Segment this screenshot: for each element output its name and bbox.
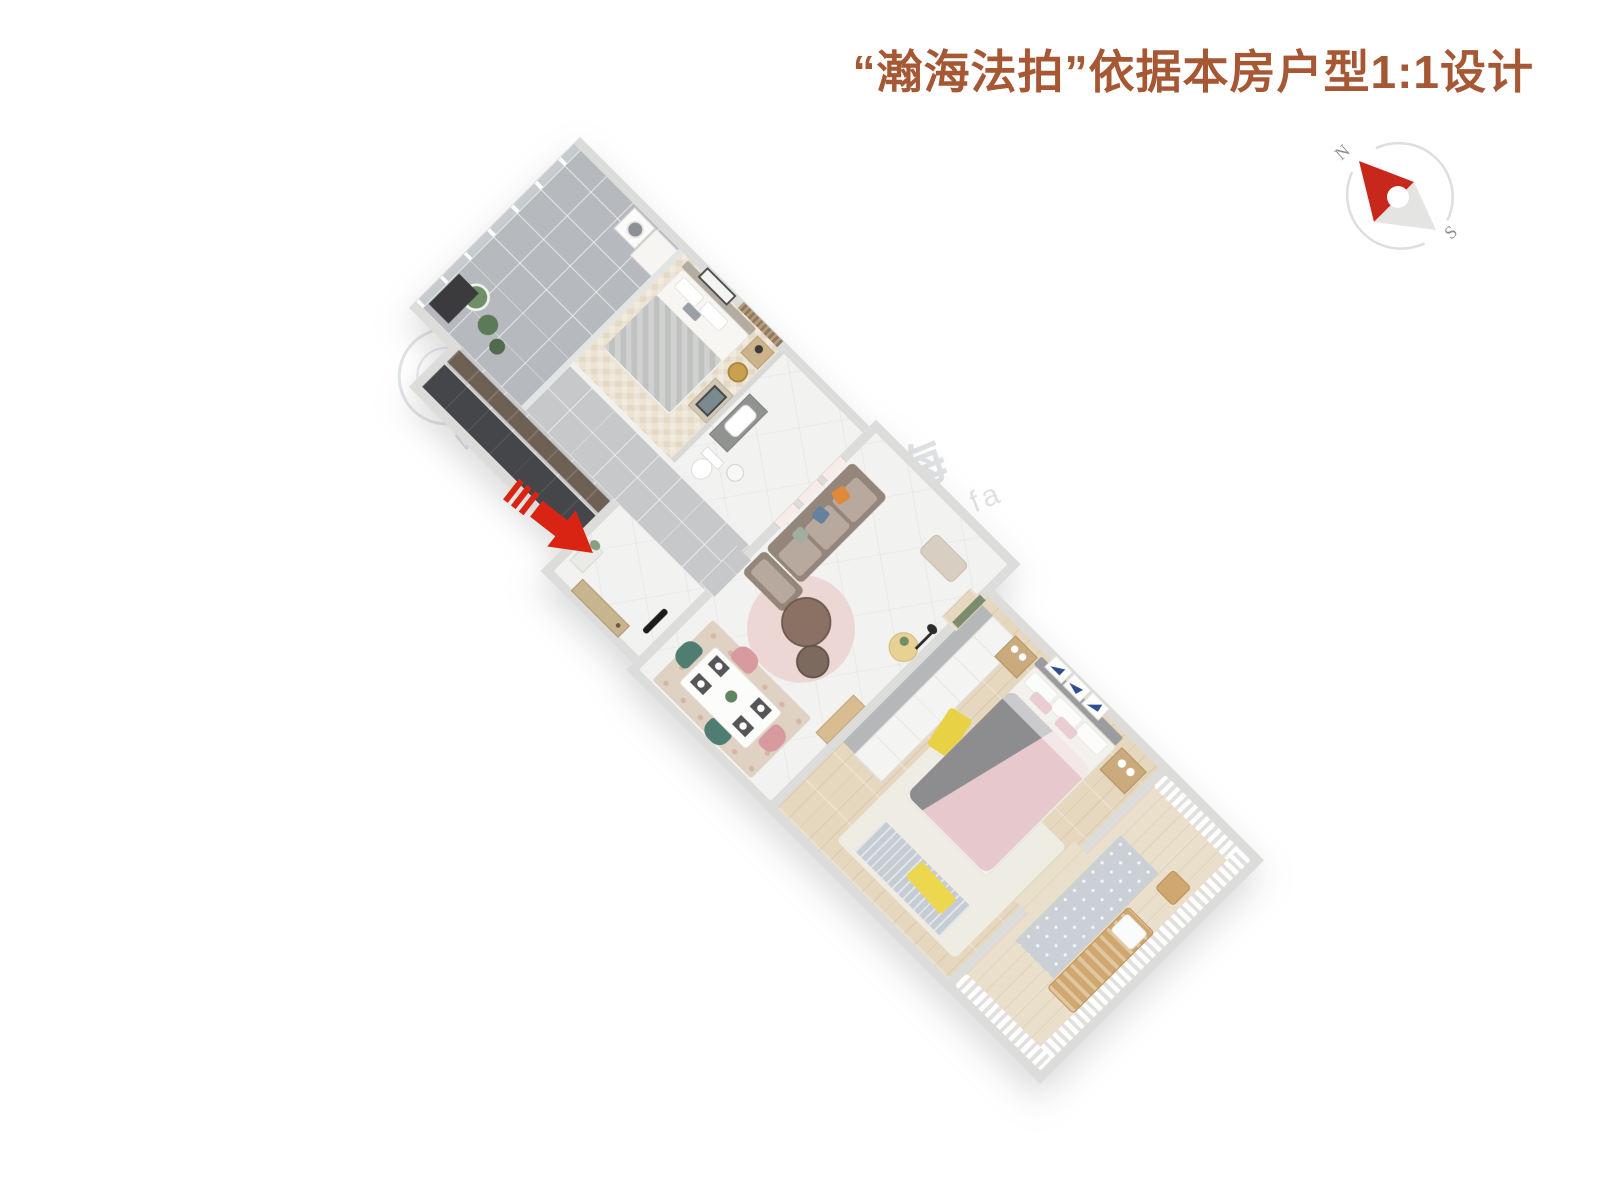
page-title: “瀚海法拍”依据本房户型1:1设计 [853,36,1534,102]
ottoman [918,533,969,584]
blue-triangle-icon [1050,660,1065,675]
blue-triangle-icon [1087,698,1102,712]
sheer-curtain [955,973,1052,1070]
screenshot-root: { "header": { "title": "“瀚海法拍”依据本房户型1:1设… [0,0,1600,1200]
entry-door [571,579,630,638]
compass: N S [1338,134,1462,258]
blue-triangle-icon [1069,679,1083,694]
compass-icon [1338,134,1462,258]
